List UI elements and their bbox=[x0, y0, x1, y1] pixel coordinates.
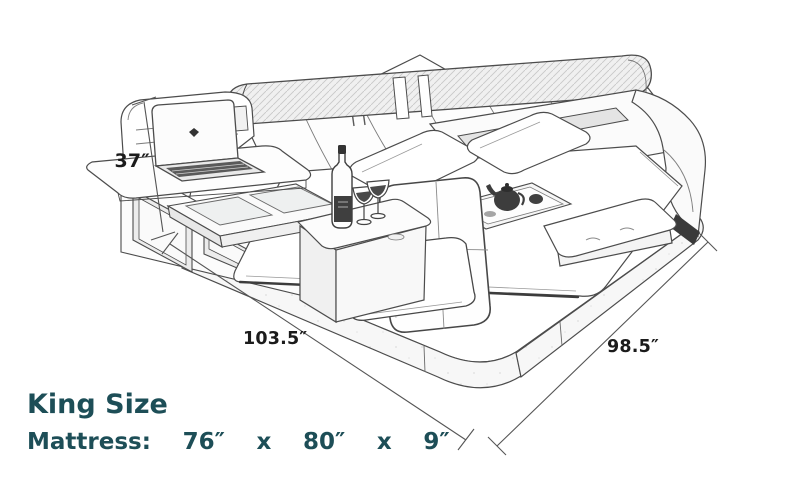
mattress-spec: Mattress: 76″ x 80″ x 9″ bbox=[27, 429, 450, 455]
width-dimension-label: 103.5″ bbox=[243, 329, 307, 349]
height-dimension-label: 37″ bbox=[106, 150, 150, 172]
caption-block: King Size Mattress: 76″ x 80″ x 9″ bbox=[27, 390, 450, 455]
depth-dimension-label: 98.5″ bbox=[607, 337, 659, 357]
product-dimension-diagram: 37″ 103.5″ 98.5″ King Size Mattress: 76″… bbox=[0, 0, 800, 500]
size-title: King Size bbox=[27, 390, 450, 420]
coaster bbox=[388, 234, 404, 240]
tea-pot-small bbox=[529, 194, 543, 204]
